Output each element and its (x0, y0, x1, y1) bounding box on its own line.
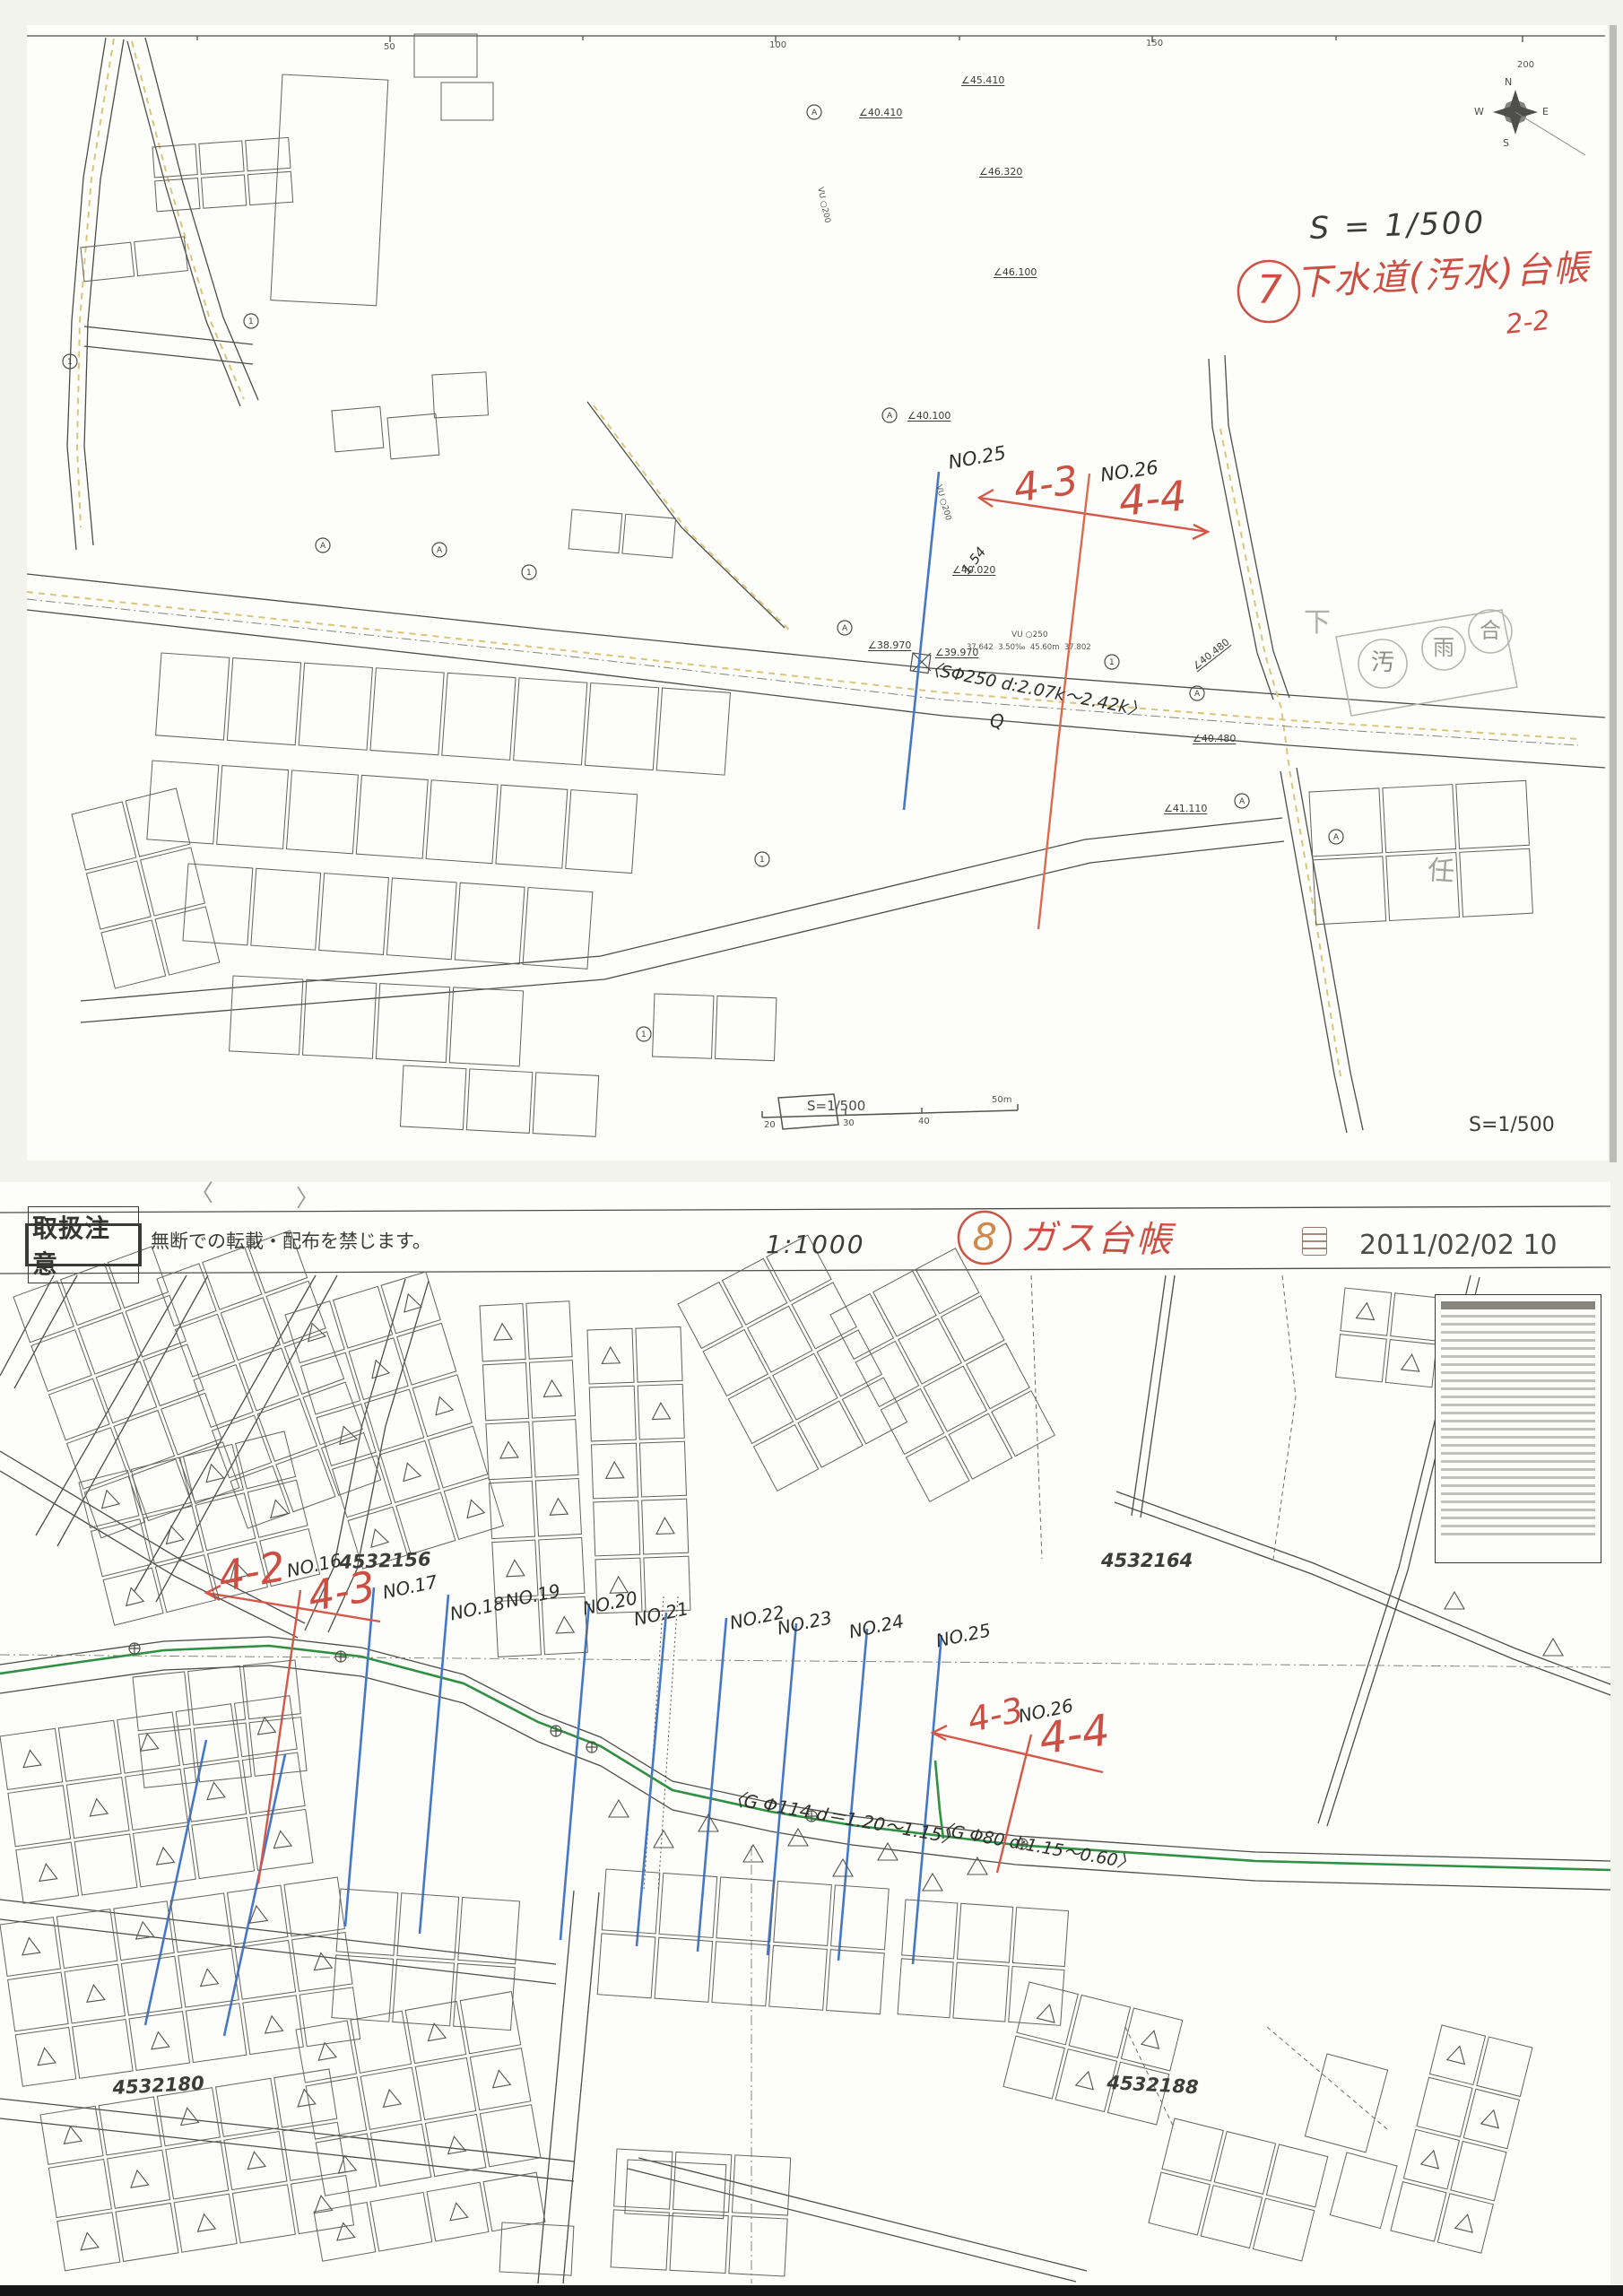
notice-text-lines (1441, 1315, 1595, 1541)
pencil-char-shita: 下 (1304, 610, 1331, 637)
elevation-label: ∠41.110 (1164, 804, 1207, 813)
parcel-block (587, 1326, 690, 1613)
compass-w-label: W (1474, 107, 1484, 117)
printed-scale-right: S=1/500 (1469, 1116, 1555, 1135)
gas-map-sheet: 〈 〉 取扱注意 無断での転載・配布を禁じます。 1:1000 8 ガス台帳 2… (0, 1182, 1610, 2287)
compass-s-label: S (1503, 138, 1509, 148)
pencil-char-usui: 雨 (1433, 637, 1454, 658)
svg-text:1: 1 (248, 317, 254, 326)
printed-scale: S=1/500 (807, 1100, 865, 1113)
parcel-block (678, 1235, 907, 1491)
route-mark-4-2: 4-2 (215, 1545, 289, 1597)
pipe-spec-label: 37.642 3.50‰ 45.60m 37.802 (967, 644, 1091, 652)
parcel-block (830, 1248, 1055, 1502)
manholes: AAA1A1A11A1A1A (63, 105, 1343, 1041)
map-scale-label: 1:1000 (766, 1232, 865, 1257)
gas-map-linework (0, 1182, 1610, 2287)
map-roads (27, 36, 1605, 1133)
elevation-label: ∠40.410 (859, 108, 902, 117)
elevation-label: ∠40.100 (907, 411, 950, 421)
existing-pipe-lines (27, 39, 1578, 1076)
elevation-label: ∠45.410 (961, 75, 1004, 85)
buildings (271, 34, 493, 459)
index-number: 8 (972, 1218, 998, 1257)
parcel-block (0, 1877, 360, 2086)
parcel-number-4532180: 4532180 (112, 2074, 204, 2098)
handwritten-scale-note: S = 1/500 (1309, 207, 1487, 244)
svg-text:1: 1 (759, 856, 765, 865)
parcel-number-4532156: 4532156 (339, 1550, 431, 1572)
road-centerline (27, 599, 1578, 745)
parcel-number-4532164: 4532164 (1101, 1552, 1193, 1570)
redistribution-notice: 無断での転載・配布を禁じます。 (151, 1232, 431, 1251)
parcel-block (13, 1247, 239, 1538)
parcel-block (40, 2069, 354, 2271)
parcel-number-4532188: 4532188 (1107, 2074, 1199, 2097)
scale-bar-number: 50m (992, 1096, 1011, 1105)
compass-n-label: N (1505, 77, 1512, 87)
svg-text:1: 1 (1109, 658, 1115, 667)
svg-text:A: A (811, 109, 818, 117)
fold-mark-right: 〉 (296, 1187, 319, 1211)
scanned-utility-ledger-page: { "sheet1": { "ruler": ["50", "100", "15… (0, 0, 1623, 2296)
parcel-block (1309, 780, 1532, 924)
approval-stamp-icon (1302, 1227, 1327, 1256)
svg-text:A: A (1194, 690, 1201, 699)
ruler-number: 50 (384, 43, 395, 52)
print-datetime: 2011/02/02 10 (1359, 1232, 1558, 1259)
elevation-label: ∠40.480 (1193, 734, 1236, 744)
route-mark-4-3: 4-3 (1011, 461, 1081, 509)
elevation-label: ∠46.320 (979, 167, 1022, 177)
parcel-block (898, 1900, 1068, 2025)
parcel-block (79, 1431, 320, 1625)
scan-bottom-edge (0, 2285, 1623, 2296)
svg-text:A: A (1239, 797, 1245, 806)
elevation-label: ∠40.020 (952, 565, 995, 575)
svg-text:A: A (437, 546, 443, 555)
handling-caution-label: 取扱注意 (28, 1206, 139, 1283)
svg-text:1: 1 (67, 358, 73, 367)
parcel-block (1003, 1982, 1183, 2125)
svg-text:A: A (320, 542, 326, 551)
handling-caution-stamp: 取扱注意 (25, 1223, 142, 1266)
pencil-char-osui: 汚 (1371, 651, 1394, 674)
ruler-number: 150 (1146, 39, 1163, 48)
parcel-block (1149, 2118, 1328, 2261)
pencil-char-gou: 合 (1480, 620, 1501, 641)
pipe-spec-label: VU ○250 (1011, 631, 1048, 639)
svg-text:A: A (1333, 833, 1340, 842)
parcel-block (568, 509, 675, 558)
parcel-block (147, 761, 638, 874)
parcel-block (81, 237, 187, 282)
scale-bar (762, 1094, 1018, 1129)
ruler-number: 200 (1517, 61, 1534, 70)
parcel-block (653, 994, 777, 1061)
fold-mark-left: 〈 (190, 1182, 213, 1205)
pencil-char-nin: 任 (1427, 857, 1455, 886)
parcel-block (332, 1889, 520, 2031)
sewer-map-sheet: AAA1A1A11A1A1A 50 100 150 200 N (27, 25, 1608, 1161)
scale-bar-number: 30 (843, 1119, 855, 1128)
parcel-block (72, 788, 220, 988)
scale-bar-number: 20 (764, 1121, 776, 1130)
symbol-triangles (609, 1386, 1574, 1891)
index-number: 7 (1257, 271, 1282, 310)
parcel-block (611, 2149, 791, 2276)
buildings (499, 2054, 1397, 2275)
scale-bar-number: 40 (918, 1118, 930, 1126)
notice-heading-bar (1441, 1301, 1595, 1309)
parcel-block (156, 653, 731, 775)
svg-text:A: A (842, 624, 848, 633)
parcel-block (0, 1696, 313, 1904)
elevation-label: ∠38.970 (868, 640, 911, 650)
hand-mark-q: Q (990, 712, 1004, 730)
ruler-number: 100 (769, 41, 786, 50)
compass-e-label: E (1542, 107, 1549, 117)
svg-text:1: 1 (526, 569, 532, 578)
svg-text:1: 1 (641, 1031, 647, 1039)
index-title: ガス台帳 (1020, 1220, 1175, 1258)
elevation-label: ∠46.100 (994, 267, 1037, 277)
parcel-block (314, 2172, 545, 2261)
scan-edge-strip (1610, 25, 1617, 1162)
parcel-block (1391, 2025, 1532, 2253)
index-page: 2-2 (1505, 308, 1551, 339)
parcel-block (400, 1065, 598, 1136)
fine-print-notice-box (1435, 1294, 1601, 1563)
parcel-block (183, 864, 593, 969)
svg-text:A: A (887, 412, 893, 421)
